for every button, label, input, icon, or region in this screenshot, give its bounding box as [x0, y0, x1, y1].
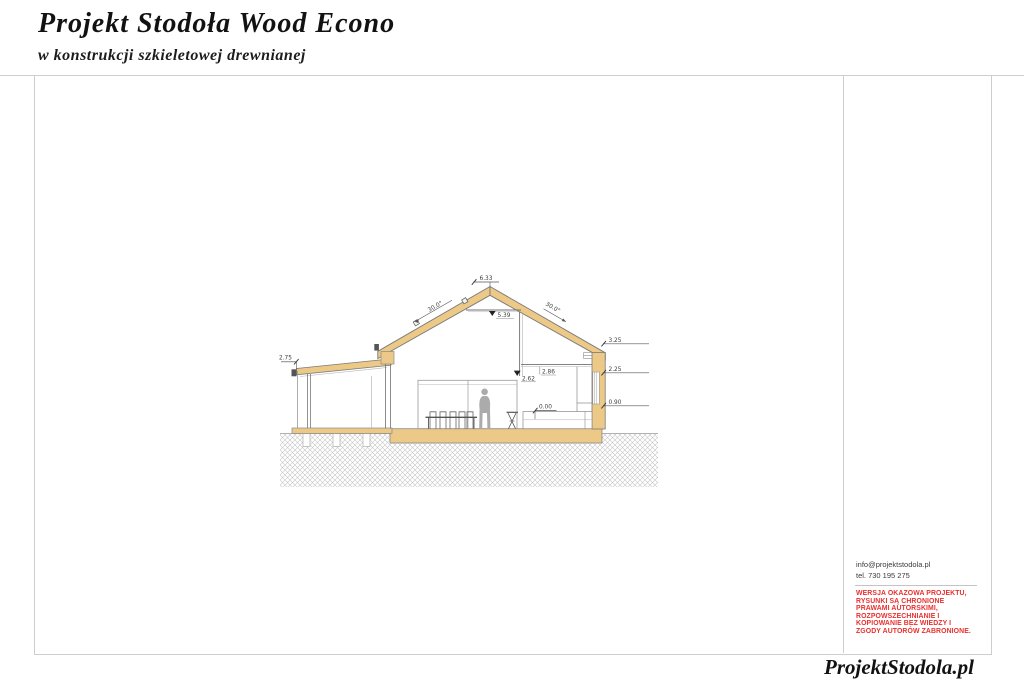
porch-roof [292, 359, 392, 377]
warning-line: KOPIOWANIE BEZ WIEDZY I [856, 620, 981, 628]
title-block-divider [843, 76, 844, 653]
contact-email: info@projektstodola.pl [856, 560, 981, 571]
dim-porch-height: 2.75 [279, 355, 299, 369]
porch-deck [292, 428, 392, 434]
dim-collar-height: 5.39 [489, 311, 514, 319]
dim-floor-label: 0.00 [539, 404, 552, 410]
warning-line: ROZPOWSZECHNIANIE I [856, 613, 981, 621]
dim-window-sill-label: 0.90 [609, 400, 622, 406]
dim-eave-label: 3.25 [609, 338, 622, 344]
glass-partition [418, 380, 517, 428]
drawing-sheet-page: Projekt Stodoła Wood Econo w konstrukcji… [0, 0, 1024, 700]
dim-ridge-label: 6.33 [480, 276, 493, 282]
dim-attic-label: 2.86 [542, 369, 555, 375]
contact-divider [855, 585, 977, 586]
roof-right-slope [490, 287, 605, 360]
warning-line: ZGODY AUTORÓW ZABRONIONE. [856, 628, 981, 636]
dim-window-sill-height: 0.90 [601, 400, 649, 409]
left-gutter [374, 344, 379, 351]
page-title: Projekt Stodoła Wood Econo [38, 8, 395, 40]
page-subtitle: w konstrukcji szkieletowej drewnianej [38, 47, 306, 65]
dining-chairs [430, 412, 473, 429]
eave-detail [584, 353, 593, 359]
floor-slab [390, 429, 602, 443]
left-glazed-wall [381, 352, 394, 429]
dim-window-head-label: 2.25 [609, 367, 622, 373]
dim-attic-height: 2.86 [540, 367, 556, 376]
contact-phone: tel. 730 195 275 [856, 571, 981, 582]
porch-gutter [292, 369, 297, 376]
dim-porch-label: 2.75 [279, 355, 292, 361]
dim-ridge-height: 6.33 [472, 276, 499, 287]
window [593, 372, 600, 404]
section-drawing: 6.33 5.39 30.0° 30.0° 2.86 2.62 [270, 260, 670, 500]
dim-collar-label: 5.39 [498, 313, 511, 319]
angle-left-label: 30.0° [427, 301, 444, 314]
dim-window-head-height: 2.25 [601, 367, 649, 376]
angle-right-label: 30.0° [544, 302, 561, 315]
dining-table [426, 417, 478, 428]
warning-line: PRAWAMI AUTORSKIMI, [856, 605, 981, 613]
porch-posts [298, 371, 372, 428]
copyright-warning: WERSJA OKAZOWA PROJEKTU, RYSUNKI SĄ CHRO… [856, 590, 981, 635]
person-figure [479, 389, 490, 429]
right-room-ceiling [521, 365, 592, 367]
contact-block: info@projektstodola.pl tel. 730 195 275 [856, 560, 981, 581]
dim-eave-height: 3.25 [601, 338, 649, 347]
warning-line: WERSJA OKAZOWA PROJEKTU, [856, 590, 981, 598]
kitchen-counter [523, 412, 592, 429]
warning-line: RYSUNKI SĄ CHRONIONE [856, 598, 981, 606]
footer-logo: ProjektStodola.pl [815, 655, 983, 680]
bar-stool [507, 412, 519, 428]
dim-opening-label: 2.62 [522, 376, 535, 382]
roof-left-slope [374, 287, 490, 359]
